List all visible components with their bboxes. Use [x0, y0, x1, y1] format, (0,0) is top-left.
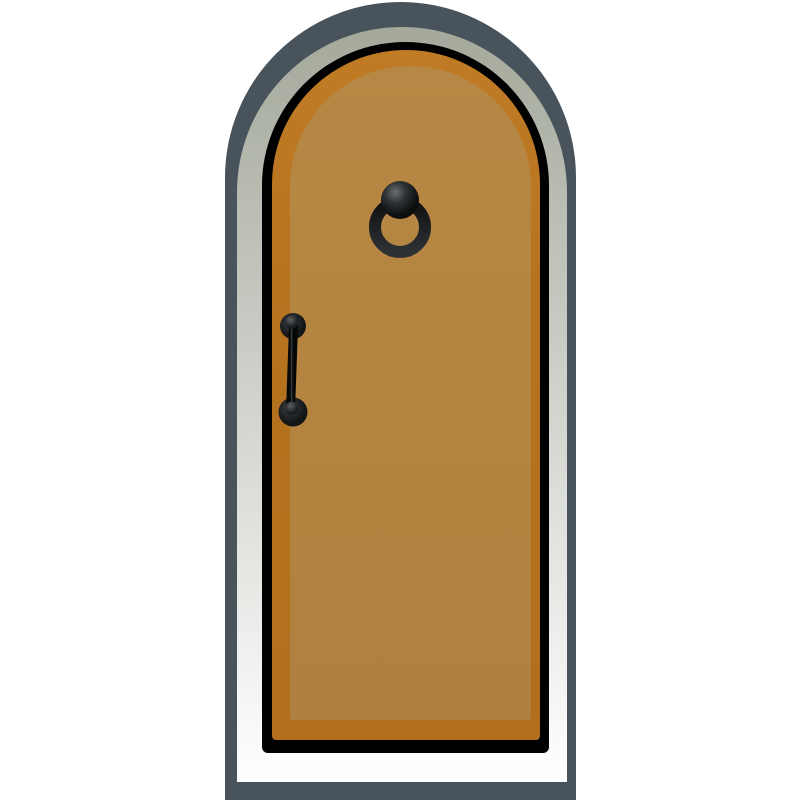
knocker-ball	[381, 181, 419, 219]
door-handle	[279, 313, 308, 427]
door-hardware	[0, 0, 800, 800]
door-illustration	[0, 0, 800, 800]
door-knocker	[375, 181, 425, 252]
handle-top-knob	[286, 316, 299, 329]
handle-bottom-knob	[286, 402, 299, 415]
handle-rod	[291, 327, 294, 410]
